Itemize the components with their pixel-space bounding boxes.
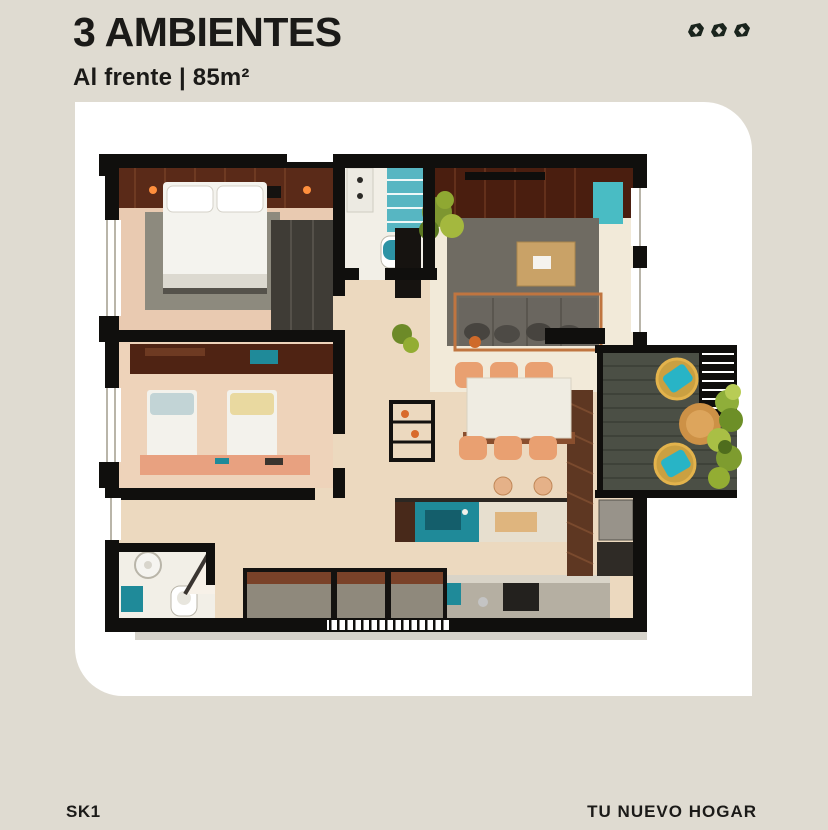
master-bedroom <box>119 168 333 330</box>
bathroom-door <box>395 228 421 298</box>
tv-console <box>465 172 545 180</box>
dining-chair <box>494 436 522 460</box>
dining-chair <box>529 436 557 460</box>
vanity-cabinet <box>121 586 143 612</box>
vanity <box>347 168 373 212</box>
leaf-icon <box>687 22 705 39</box>
single-bed <box>147 390 197 460</box>
leaf-icon <box>733 22 751 39</box>
balcony <box>595 345 743 498</box>
bathroom-doorway <box>359 268 385 280</box>
double-bed <box>163 182 267 294</box>
tagline: TU NUEVO HOGAR <box>587 802 757 822</box>
coffee-table <box>517 242 575 286</box>
window <box>631 268 649 332</box>
window <box>631 188 649 246</box>
vent-grille <box>327 620 449 630</box>
planter-pot <box>469 336 481 348</box>
shadow <box>135 632 647 640</box>
window <box>101 220 121 316</box>
floorplan-card <box>75 102 752 696</box>
rattan-chair <box>655 444 695 484</box>
cooktop <box>503 583 539 611</box>
page-title: 3 AMBIENTES <box>73 12 342 53</box>
island-sink <box>425 510 461 530</box>
wall-art <box>267 186 281 198</box>
cutting-board <box>495 512 537 532</box>
entry-closets <box>243 568 447 618</box>
floor-plan <box>75 102 752 696</box>
dining-table <box>463 378 575 444</box>
bedside-lamp <box>149 186 157 194</box>
kettle <box>478 597 488 607</box>
stool <box>494 477 512 495</box>
header: 3 AMBIENTES Al frente | 85m² <box>73 12 342 92</box>
brand-logo <box>687 22 751 39</box>
stool <box>534 477 552 495</box>
window <box>101 498 121 540</box>
window <box>287 154 333 162</box>
fridge <box>599 500 633 540</box>
kitchen-island <box>395 498 577 542</box>
kitchen-counter <box>447 575 610 618</box>
teal-throw <box>593 182 623 224</box>
window <box>101 388 121 462</box>
rattan-chair <box>657 359 697 399</box>
unit-code: SK1 <box>66 802 101 822</box>
bedside-lamp <box>303 186 311 194</box>
dining-chair <box>459 436 487 460</box>
single-bed <box>227 390 277 460</box>
page-subtitle: Al frente | 85m² <box>73 64 342 92</box>
wardrobe <box>271 220 333 330</box>
desk-chair <box>250 350 278 364</box>
hall-plant-leaf <box>403 337 419 353</box>
leaf-icon <box>710 22 728 39</box>
